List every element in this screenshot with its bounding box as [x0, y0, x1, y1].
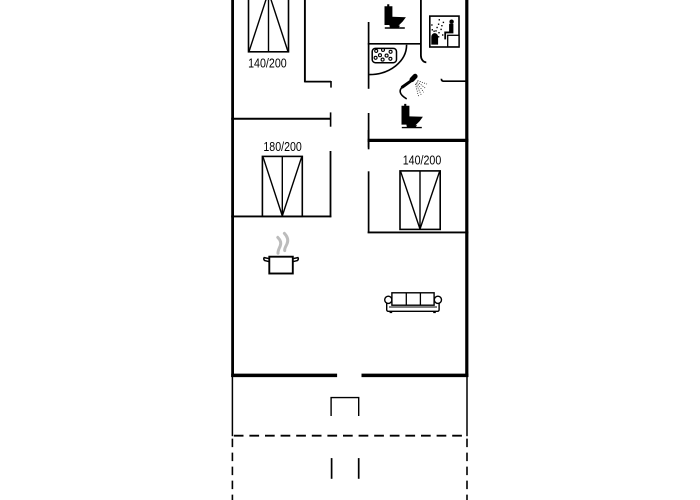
svg-text:140/200: 140/200: [403, 154, 442, 168]
svg-text:140/200: 140/200: [248, 56, 287, 70]
svg-text:180/200: 180/200: [263, 140, 301, 154]
